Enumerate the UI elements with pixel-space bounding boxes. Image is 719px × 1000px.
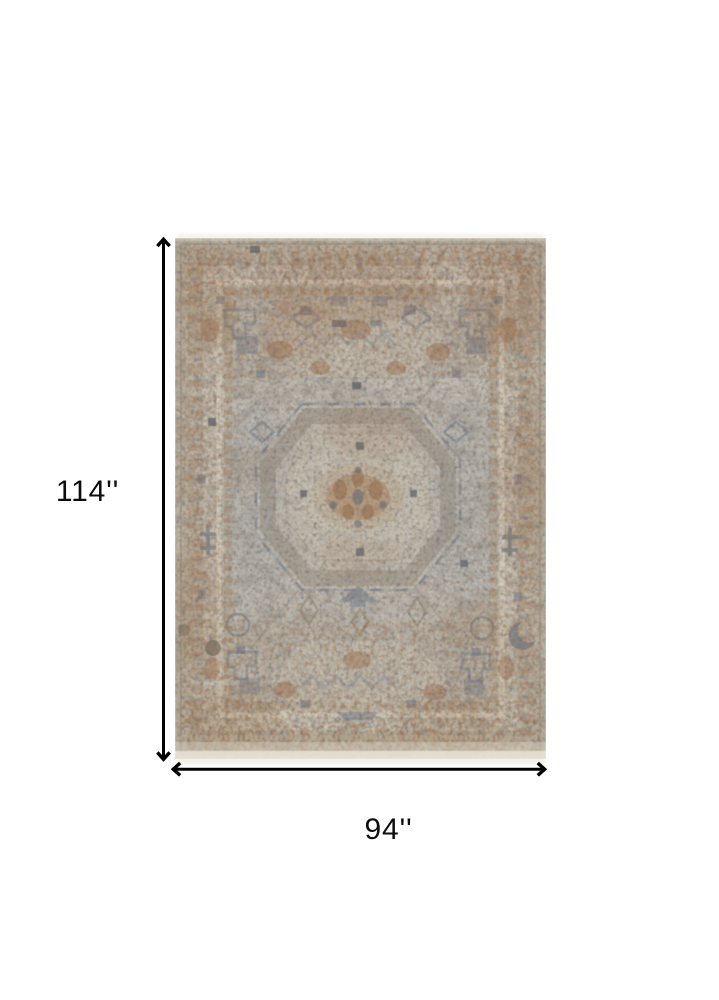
svg-text:114'': 114''	[56, 475, 119, 508]
svg-text:94'': 94''	[364, 813, 412, 846]
